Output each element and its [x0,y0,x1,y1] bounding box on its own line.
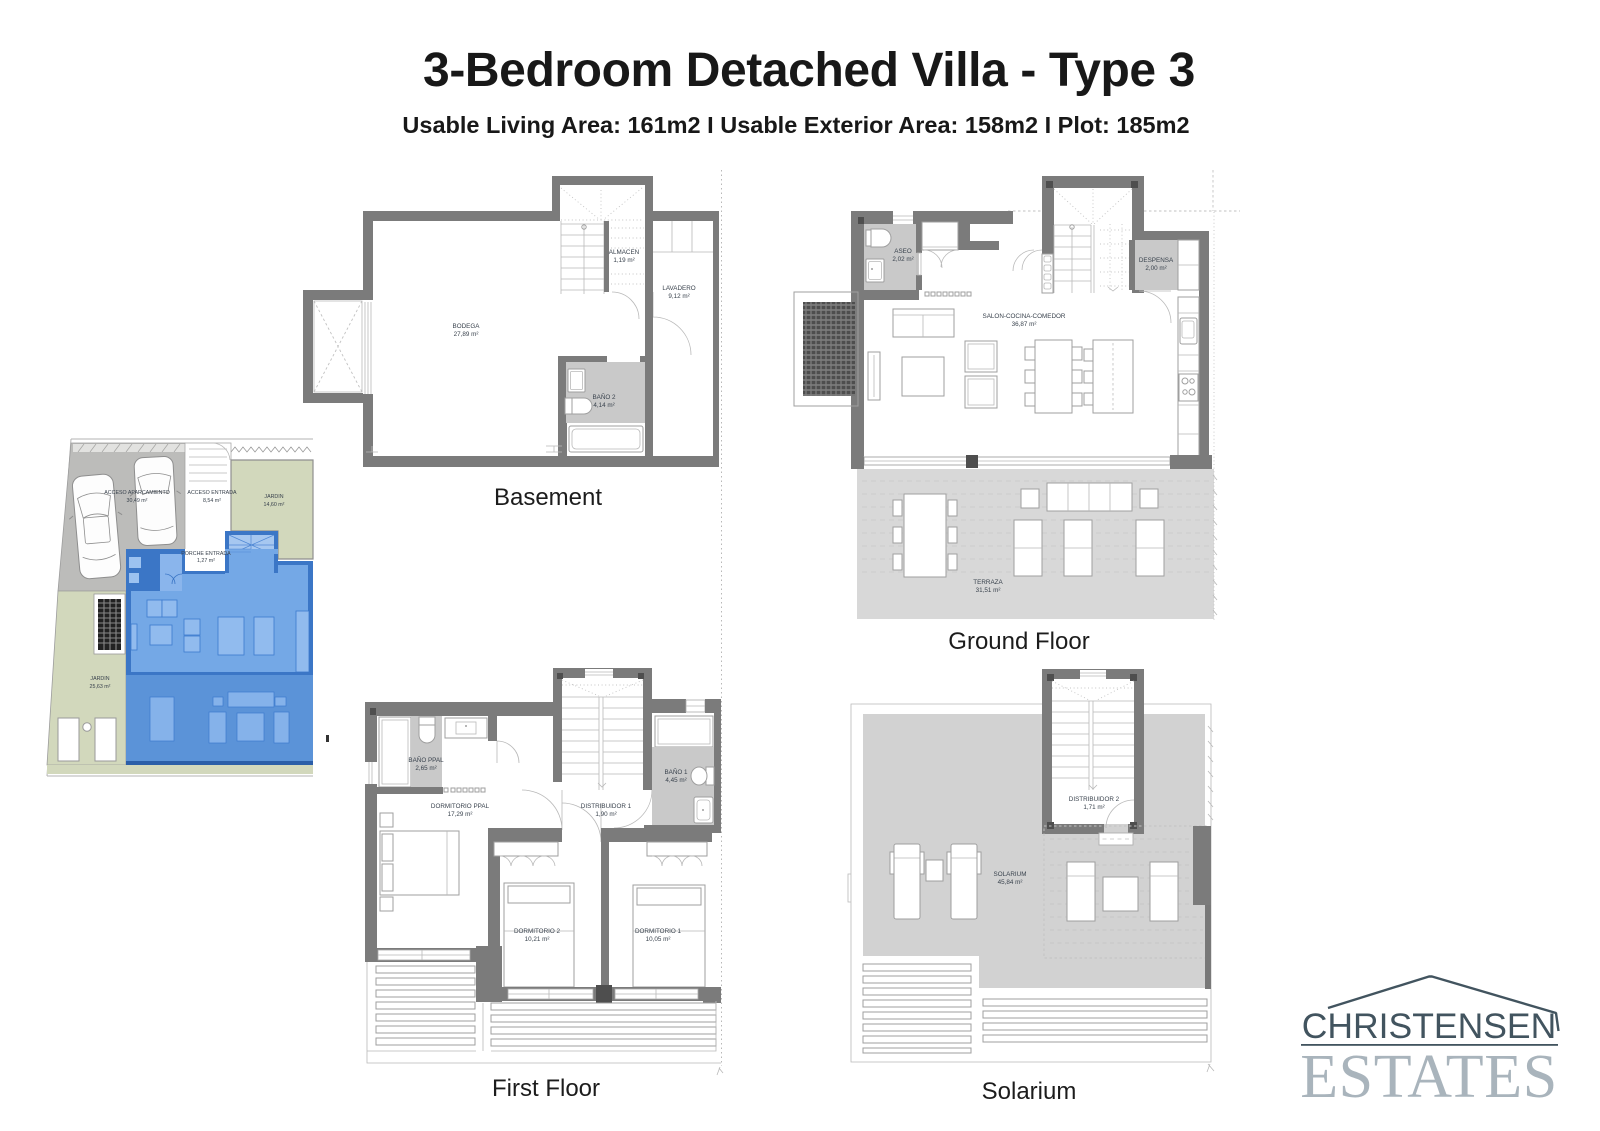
svg-text:SALON-COCINA-COMEDOR: SALON-COCINA-COMEDOR [983,313,1066,320]
svg-text:DISTRIBUIDOR 1: DISTRIBUIDOR 1 [581,803,632,810]
svg-text:DISTRIBUIDOR 2: DISTRIBUIDOR 2 [1069,796,1120,803]
svg-text:JARDIN: JARDIN [264,494,283,500]
svg-text:25,63 m²: 25,63 m² [90,684,111,690]
svg-text:30,49 m²: 30,49 m² [127,498,148,504]
svg-text:10,21 m²: 10,21 m² [525,936,550,943]
svg-text:PORCHE ENTRADA: PORCHE ENTRADA [181,551,231,557]
svg-text:BAÑO PPAL: BAÑO PPAL [408,755,444,764]
svg-text:45,84 m²: 45,84 m² [998,879,1023,886]
svg-text:1,90 m²: 1,90 m² [595,811,616,818]
svg-text:DORMITORIO 1: DORMITORIO 1 [635,928,682,935]
svg-text:LAVADERO: LAVADERO [662,285,695,292]
svg-text:BAÑO 2: BAÑO 2 [592,392,616,401]
svg-text:DORMITORIO 2: DORMITORIO 2 [514,928,561,935]
svg-text:SOLARIUM: SOLARIUM [994,871,1027,878]
svg-text:ASEO: ASEO [894,248,912,255]
svg-text:TERRAZA: TERRAZA [973,579,1003,586]
svg-text:31,51 m²: 31,51 m² [976,587,1001,594]
svg-text:2,00 m²: 2,00 m² [1145,265,1166,272]
svg-text:4,14 m²: 4,14 m² [593,402,614,409]
svg-text:1,71 m²: 1,71 m² [1083,804,1104,811]
svg-text:ACCESO APARCAMIENTO: ACCESO APARCAMIENTO [104,490,169,496]
svg-text:JARDIN: JARDIN [90,676,109,682]
svg-text:DORMITORIO PPAL: DORMITORIO PPAL [431,803,490,810]
svg-text:1,19 m²: 1,19 m² [613,257,634,264]
svg-text:36,87 m²: 36,87 m² [1012,321,1037,328]
svg-text:1,27 m²: 1,27 m² [197,558,215,564]
svg-text:27,89 m²: 27,89 m² [454,331,479,338]
svg-text:ACCESO ENTRADA: ACCESO ENTRADA [187,490,237,496]
svg-text:14,60 m²: 14,60 m² [264,502,285,508]
svg-text:CHRISTENSEN: CHRISTENSEN [1302,1006,1556,1046]
svg-text:2,65 m²: 2,65 m² [415,765,436,772]
svg-text:ESTATES: ESTATES [1300,1043,1558,1111]
svg-text:BODEGA: BODEGA [453,323,481,330]
svg-text:8,54 m²: 8,54 m² [203,498,221,504]
svg-text:4,45 m²: 4,45 m² [665,777,686,784]
svg-text:BAÑO 1: BAÑO 1 [664,767,688,776]
svg-text:10,05 m²: 10,05 m² [646,936,671,943]
svg-text:2,02 m²: 2,02 m² [892,256,913,263]
svg-text:9,12 m²: 9,12 m² [668,293,689,300]
svg-text:17,29 m²: 17,29 m² [448,811,473,818]
svg-text:ALMACEN: ALMACEN [609,249,640,256]
svg-text:DESPENSA: DESPENSA [1139,257,1174,264]
